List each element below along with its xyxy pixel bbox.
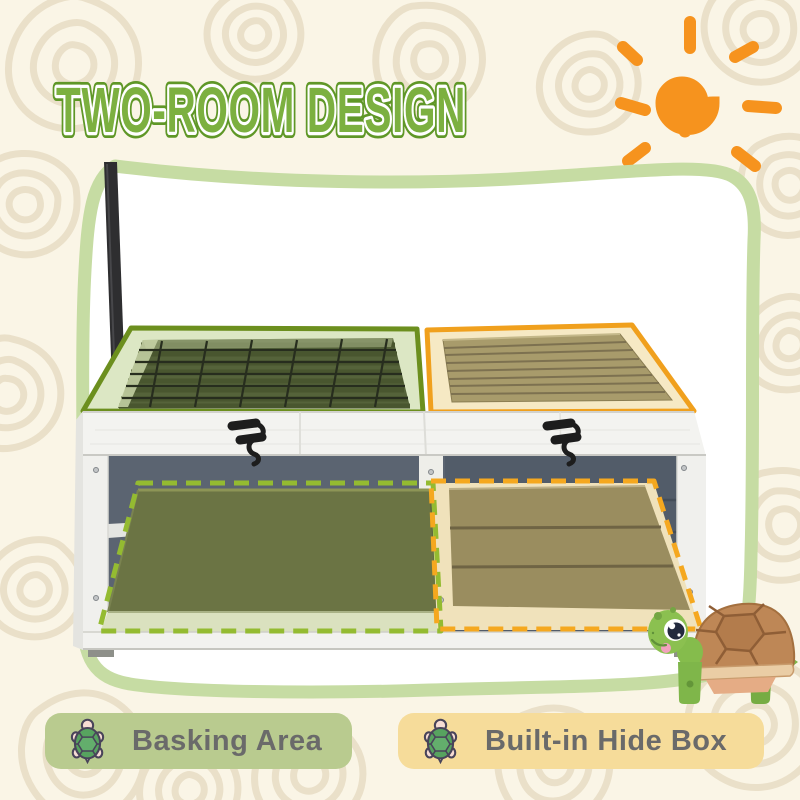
basking-tray	[100, 490, 441, 632]
legend-label: Basking Area	[132, 725, 322, 758]
tortoise-head	[648, 610, 688, 654]
heat-lamp-pole	[104, 162, 126, 411]
panel-frame	[83, 166, 755, 692]
legend-item-hide-box: Built-in Hide Box	[398, 713, 764, 769]
page-title: TWO-ROOM DESIGN TWO-ROOM DESIGN TWO-ROOM…	[40, 70, 510, 162]
tortoise-body	[648, 604, 798, 704]
hide-box	[431, 483, 700, 630]
left-post	[83, 456, 108, 650]
wood-lid	[427, 325, 694, 412]
infographic-canvas: TWO-ROOM DESIGN TWO-ROOM DESIGN TWO-ROOM…	[0, 0, 800, 800]
shell-pattern	[696, 604, 786, 666]
title-fill: TWO-ROOM DESIGN	[56, 74, 466, 146]
enclosure-interior	[83, 456, 706, 650]
sun-rays	[621, 22, 776, 198]
turtle-icon	[69, 718, 106, 764]
hide-box-highlight	[431, 481, 701, 629]
wood-lid-seams	[444, 342, 665, 394]
front-rail	[73, 411, 706, 650]
latch-icon	[232, 423, 263, 464]
right-post	[677, 456, 706, 650]
screws	[94, 466, 693, 603]
center-post	[419, 456, 443, 632]
legend-item-basking-area: Basking Area	[45, 713, 352, 769]
mesh-lid	[83, 328, 423, 412]
substrate-slats	[119, 345, 410, 406]
sun-glyph	[621, 22, 776, 198]
wire-grid	[122, 339, 408, 407]
turtle-icon	[422, 718, 459, 764]
tortoise-eye	[668, 623, 685, 640]
legend-label: Built-in Hide Box	[485, 725, 727, 758]
basking-area-highlight	[99, 483, 441, 631]
sun-spiral	[662, 83, 713, 131]
bottom-rail	[83, 632, 706, 657]
latch-icon	[547, 423, 578, 464]
back-wall-planks	[445, 500, 692, 596]
